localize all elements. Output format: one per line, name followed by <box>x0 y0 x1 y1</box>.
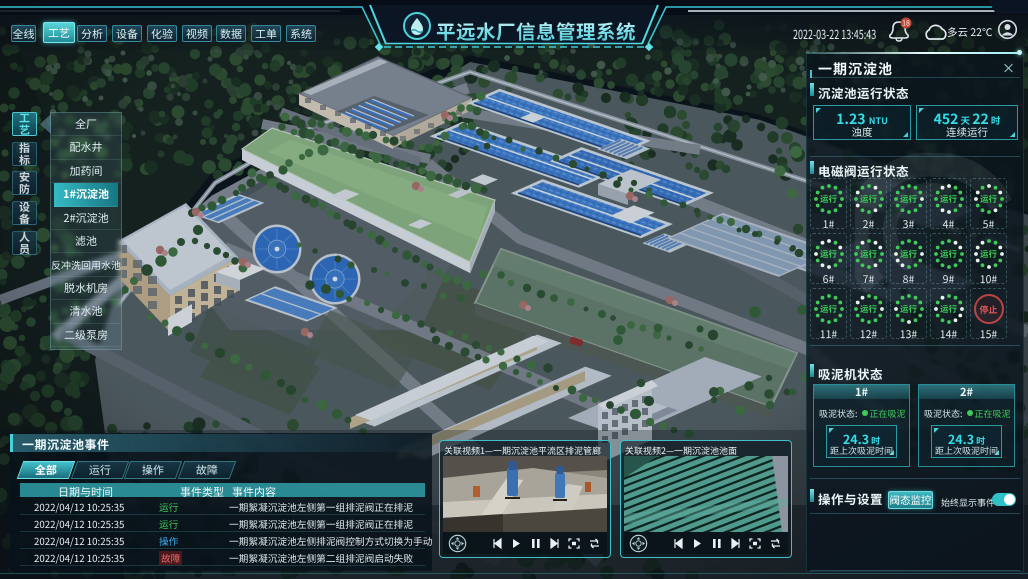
svg-text:18: 18 <box>902 19 910 29</box>
